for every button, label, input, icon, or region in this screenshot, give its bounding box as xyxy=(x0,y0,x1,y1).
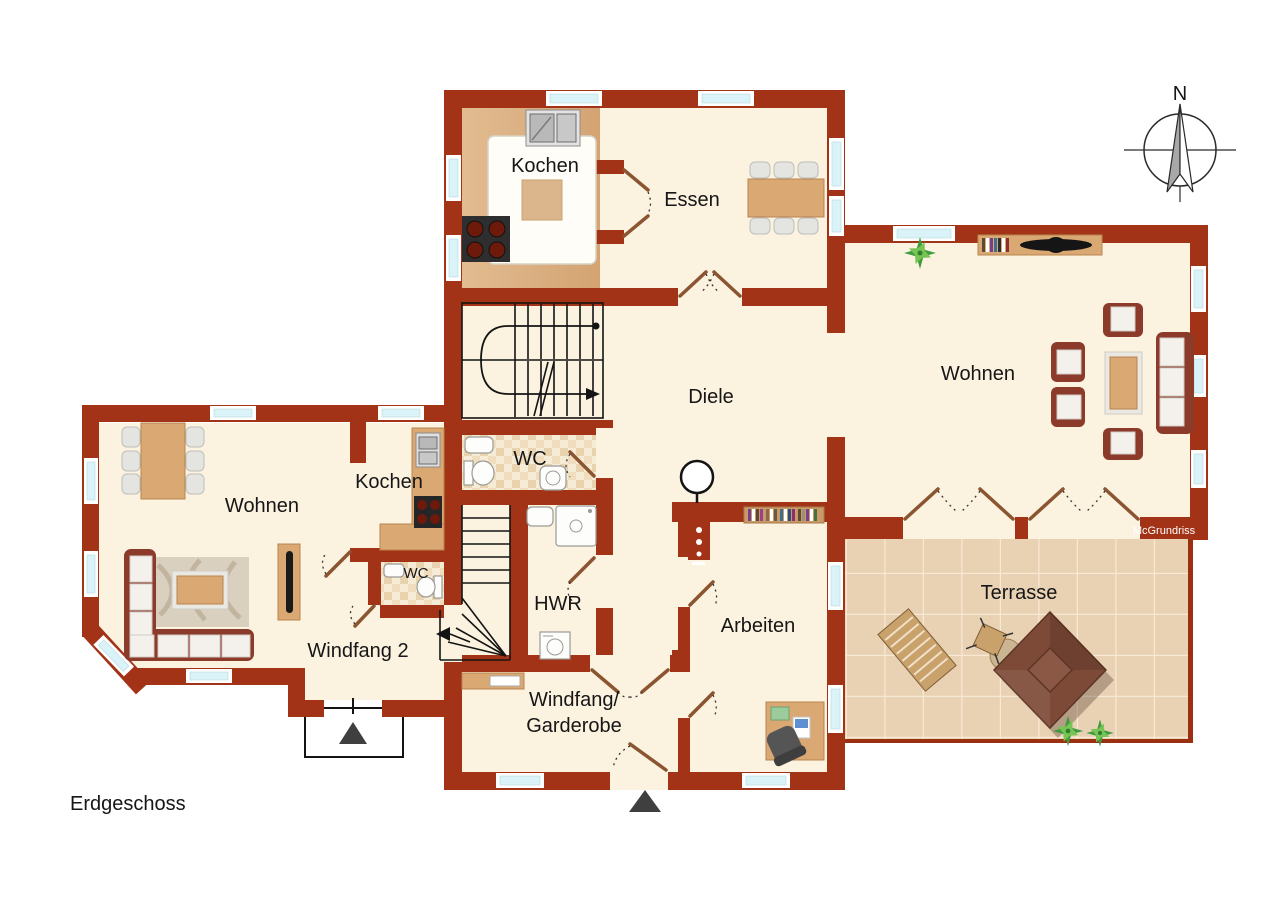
window xyxy=(1191,450,1206,488)
sideboard xyxy=(978,235,1102,255)
room-label-diele: Diele xyxy=(688,386,734,408)
terrace-border-bottom xyxy=(845,739,1193,743)
sink xyxy=(384,564,404,577)
window xyxy=(186,669,232,683)
window xyxy=(446,155,461,201)
window xyxy=(84,551,98,597)
armchair xyxy=(1103,303,1143,337)
chair xyxy=(122,451,140,471)
window xyxy=(496,773,544,788)
room-label-windfang2: Windfang 2 xyxy=(307,640,408,662)
north-arrow xyxy=(1180,104,1193,192)
window xyxy=(446,235,461,281)
entrance-arrow-main xyxy=(629,790,661,812)
compass-north-label: N xyxy=(1173,83,1187,105)
chair xyxy=(798,218,818,234)
chair xyxy=(774,218,794,234)
dining-table xyxy=(141,423,185,499)
paper xyxy=(771,707,789,720)
compass-rose: N xyxy=(1124,83,1236,202)
chair xyxy=(122,427,140,447)
bookshelf xyxy=(744,507,824,523)
room-label-wc-left: WC xyxy=(404,565,429,582)
window xyxy=(828,562,843,610)
window xyxy=(893,226,955,241)
window xyxy=(742,773,790,788)
cd-rack xyxy=(982,238,1009,252)
room-label-kochen-left: Kochen xyxy=(355,471,423,493)
desk-area xyxy=(762,702,824,768)
chair xyxy=(750,162,770,178)
room-label-kochen-top: Kochen xyxy=(511,155,579,177)
floorplan-svg: N Kochen Essen Wohnen Diele WC Kochen Wo… xyxy=(0,0,1280,905)
north-arrow xyxy=(1167,104,1180,192)
watermark: McGrundriss xyxy=(1133,525,1196,537)
stove xyxy=(414,496,442,528)
sink xyxy=(416,433,440,467)
window xyxy=(828,685,843,733)
room-label-windfang-garderobe-1: Windfang/ xyxy=(529,689,619,711)
coat-hooks xyxy=(688,522,710,565)
room-label-essen: Essen xyxy=(664,189,720,211)
sink xyxy=(526,110,580,146)
chair xyxy=(774,162,794,178)
window xyxy=(210,406,256,420)
room-label-terrasse: Terrasse xyxy=(981,582,1058,604)
room-label-windfang-garderobe-2: Garderobe xyxy=(526,715,622,737)
chair xyxy=(186,474,204,494)
room-label-wohnen-left: Wohnen xyxy=(225,495,299,517)
sofa xyxy=(1156,332,1194,434)
stove xyxy=(462,216,510,262)
chair xyxy=(750,218,770,234)
window xyxy=(84,458,98,504)
chair xyxy=(186,427,204,447)
shower xyxy=(556,506,596,546)
coffee-table xyxy=(1105,352,1142,414)
room-label-wc-mid: WC xyxy=(513,448,546,470)
dining-table xyxy=(748,179,824,217)
room-label-wohnen-right: Wohnen xyxy=(941,363,1015,385)
window xyxy=(698,91,754,106)
room-label-hwr: HWR xyxy=(534,593,582,615)
chair xyxy=(122,474,140,494)
window xyxy=(546,91,602,106)
window xyxy=(829,138,844,190)
sink xyxy=(465,437,493,453)
window xyxy=(1191,266,1206,312)
dining-area-essen xyxy=(748,162,824,234)
room-label-arbeiten: Arbeiten xyxy=(721,615,796,637)
window xyxy=(378,406,424,420)
terrace-border-right xyxy=(1188,539,1193,743)
floorplan-canvas: N Kochen Essen Wohnen Diele WC Kochen Wo… xyxy=(0,0,1280,905)
toilet xyxy=(464,461,494,485)
wardrobe xyxy=(462,673,524,689)
chair xyxy=(186,451,204,471)
armchair xyxy=(1051,342,1085,382)
armchair xyxy=(1103,428,1143,460)
washing-machine xyxy=(540,632,570,659)
window xyxy=(829,196,844,236)
entrance-arrow xyxy=(339,722,367,744)
tv-board xyxy=(278,544,300,620)
chair xyxy=(798,162,818,178)
coffee-table xyxy=(172,571,228,609)
armchair xyxy=(1051,387,1085,427)
kitchen-island xyxy=(522,180,562,220)
sink xyxy=(527,507,553,526)
floor-label: Erdgeschoss xyxy=(70,793,186,815)
